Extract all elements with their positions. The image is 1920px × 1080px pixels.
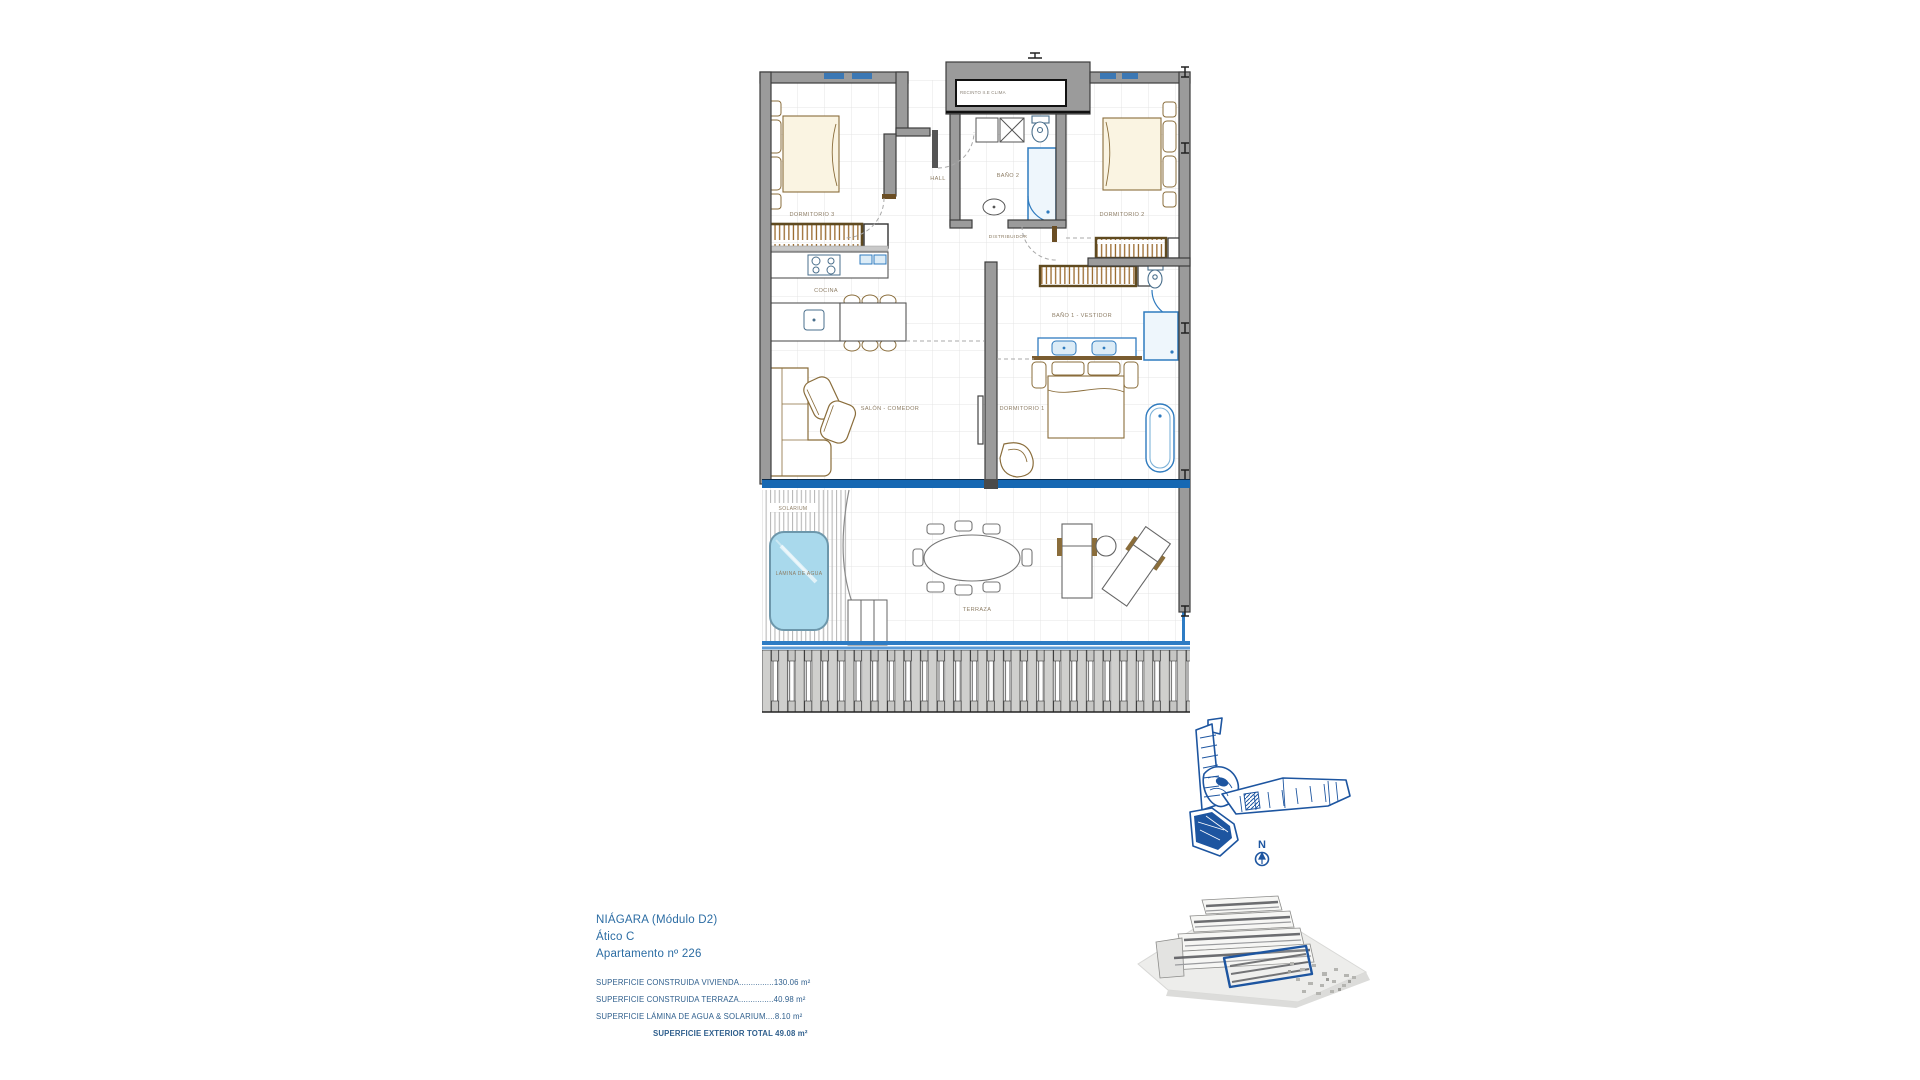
building-render	[1138, 896, 1370, 1008]
bathtub	[1146, 404, 1174, 472]
terrace-railing	[762, 641, 1190, 712]
site-plan: N	[1190, 718, 1350, 866]
compass: N	[1256, 839, 1269, 866]
floor-name: Ático C	[596, 929, 896, 946]
label-dormitorio1: DORMITORIO 1	[999, 406, 1044, 412]
label-dormitorio3: DORMITORIO 3	[789, 212, 834, 218]
hob	[808, 255, 840, 275]
apartment-number: Apartamento nº 226	[596, 946, 896, 963]
tv	[978, 396, 983, 444]
shower	[1028, 148, 1056, 222]
wardrobe	[1096, 238, 1166, 258]
label-solarium: SOLARIUM	[779, 506, 808, 512]
wardrobe	[764, 224, 862, 248]
area-terraza: SUPERFICIE CONSTRUIDA TERRAZA...........…	[596, 991, 896, 1008]
bed	[1048, 376, 1124, 438]
floorplan-drawing: RECINTO II.E CLIMA DORMITORIO 3 HALL BAÑ…	[0, 0, 1920, 1080]
toilet	[1032, 116, 1049, 142]
label-lamina: LÁMINA DE AGUA	[776, 570, 823, 577]
floorplan-page: RECINTO II.E CLIMA DORMITORIO 3 HALL BAÑ…	[0, 0, 1920, 1080]
label-distribuidor: DISTRIBUIDOR	[989, 234, 1028, 240]
label-terraza: TERRAZA	[963, 607, 992, 613]
toilet	[1148, 264, 1163, 288]
shower	[1144, 312, 1178, 360]
wardrobe	[1040, 266, 1136, 286]
label-bano2: BAÑO 2	[997, 172, 1020, 179]
terrace-steps	[848, 600, 887, 645]
area-vivienda: SUPERFICIE CONSTRUIDA VIVIENDA..........…	[596, 974, 896, 991]
kitchen-sink	[860, 255, 872, 264]
area-summary: SUPERFICIE CONSTRUIDA VIVIENDA..........…	[596, 974, 896, 1042]
project-title: NIÁGARA (Módulo D2)	[596, 912, 896, 929]
highlighted-unit	[1244, 792, 1260, 810]
pool	[770, 532, 828, 630]
glass-wall	[762, 479, 1190, 489]
apartment-info: NIÁGARA (Módulo D2) Ático C Apartamento …	[596, 912, 896, 1042]
label-recinto: RECINTO II.E CLIMA	[960, 90, 1006, 95]
area-exterior-total: SUPERFICIE EXTERIOR TOTAL 49.08 m²	[596, 1025, 896, 1042]
label-hall: HALL	[930, 176, 945, 182]
washing-machine	[1000, 118, 1024, 142]
area-lamina-solarium: SUPERFICIE LÁMINA DE AGUA & SOLARIUM....…	[596, 1008, 896, 1025]
double-vanity	[1038, 338, 1136, 358]
label-salon: SALÓN - COMEDOR	[861, 405, 919, 412]
label-bano1: BAÑO 1 - VESTIDOR	[1052, 312, 1112, 319]
label-cocina: COCINA	[814, 288, 838, 294]
label-dormitorio2: DORMITORIO 2	[1099, 212, 1144, 218]
apartment-plan: RECINTO II.E CLIMA DORMITORIO 3 HALL BAÑ…	[760, 53, 1190, 712]
compass-n-label: N	[1258, 839, 1266, 851]
